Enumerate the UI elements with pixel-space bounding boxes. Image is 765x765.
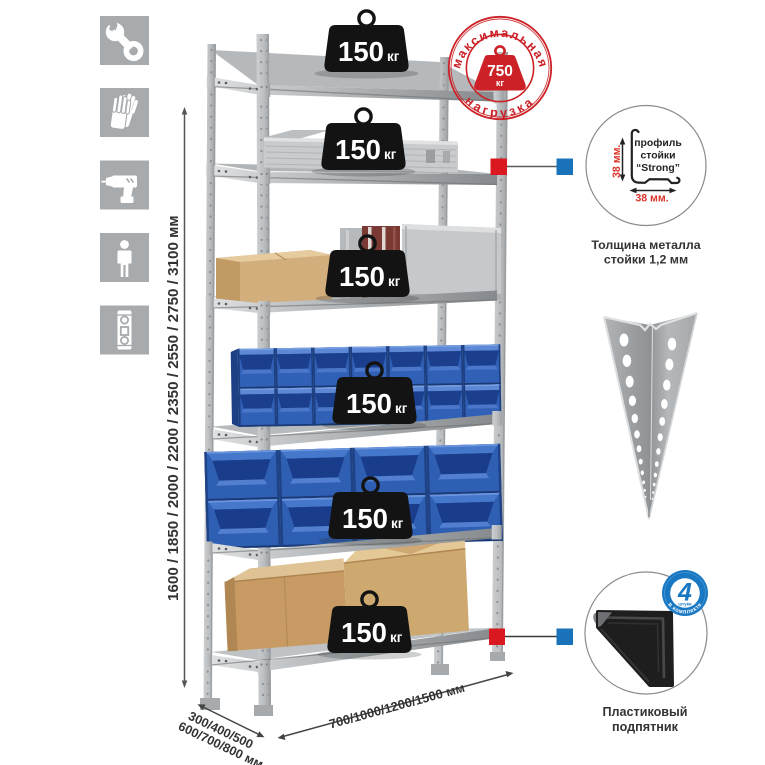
svg-text:“Strong”: “Strong” — [636, 163, 680, 174]
svg-text:стойки: стойки — [640, 151, 675, 162]
svg-text:Толщина металла: Толщина металла — [591, 238, 700, 252]
svg-text:стойки 1,2 мм: стойки 1,2 мм — [604, 253, 688, 267]
svg-text:подпятник: подпятник — [612, 720, 679, 734]
svg-text:38 мм.: 38 мм. — [635, 193, 668, 205]
svg-text:38 мм.: 38 мм. — [611, 145, 623, 178]
svg-text:700/1000/1200/1500 мм: 700/1000/1200/1500 мм — [327, 680, 466, 732]
svg-text:штуки: штуки — [678, 602, 692, 607]
svg-text:профиль: профиль — [634, 137, 681, 149]
svg-text:кг: кг — [496, 78, 505, 88]
svg-text:Пластиковый: Пластиковый — [602, 705, 687, 719]
svg-text:1600 / 1850 / 2000 / 2200 / 23: 1600 / 1850 / 2000 / 2200 / 2350 / 2550 … — [165, 215, 182, 601]
